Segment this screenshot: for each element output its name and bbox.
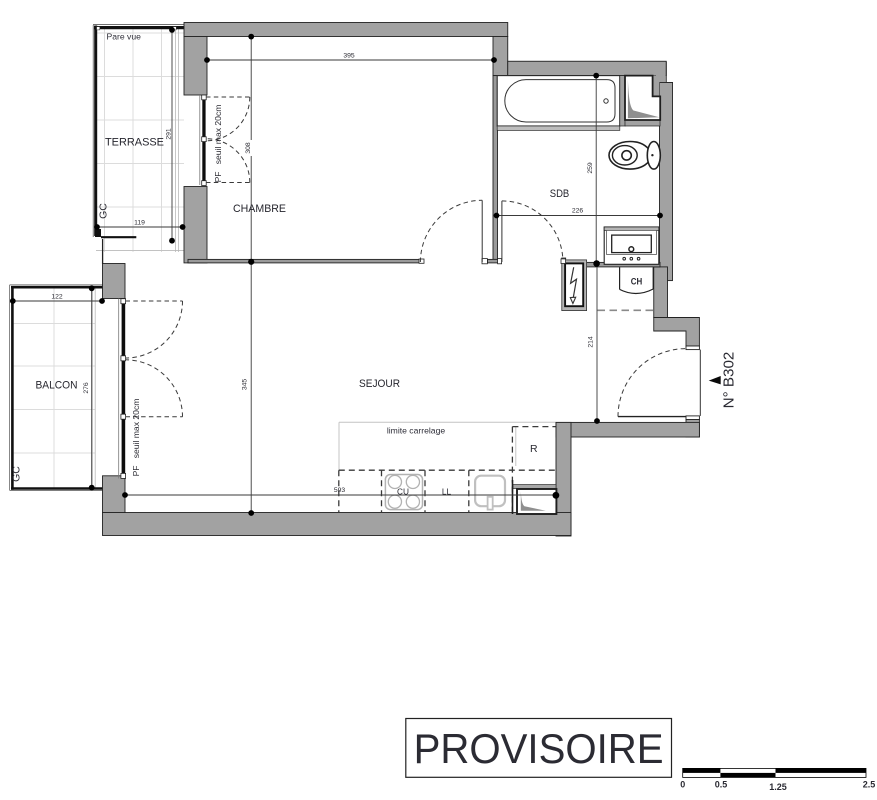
svg-text:308: 308	[245, 142, 252, 154]
svg-text:345: 345	[242, 379, 249, 391]
svg-text:PROVISOIRE: PROVISOIRE	[414, 725, 664, 772]
svg-text:TERRASSE: TERRASSE	[105, 137, 164, 149]
svg-text:CH: CH	[631, 277, 643, 287]
svg-text:119: 119	[134, 220, 145, 227]
svg-text:291: 291	[165, 128, 172, 140]
svg-text:CU: CU	[397, 486, 409, 496]
svg-text:214: 214	[587, 336, 594, 348]
svg-text:PF seuil max 20cm: PF seuil max 20cm	[131, 399, 141, 477]
svg-text:R: R	[530, 443, 538, 455]
svg-text:395: 395	[343, 53, 355, 60]
svg-text:BALCON: BALCON	[36, 380, 78, 392]
svg-text:limite carrelage: limite carrelage	[387, 426, 445, 436]
svg-text:1.25: 1.25	[769, 782, 787, 792]
svg-text:GC: GC	[11, 466, 23, 482]
svg-text:2.5: 2.5	[863, 780, 876, 790]
svg-text:SEJOUR: SEJOUR	[359, 378, 400, 390]
svg-text:276: 276	[83, 382, 90, 394]
svg-text:N° B302: N° B302	[721, 352, 738, 409]
svg-text:SDB: SDB	[550, 188, 570, 200]
svg-text:122: 122	[51, 293, 63, 300]
svg-text:LL: LL	[442, 487, 452, 497]
svg-text:Pare vue: Pare vue	[107, 32, 142, 42]
svg-text:0.5: 0.5	[715, 780, 728, 790]
svg-text:0: 0	[680, 780, 685, 790]
svg-text:593: 593	[334, 487, 346, 494]
svg-text:259: 259	[587, 162, 594, 174]
svg-text:GC: GC	[98, 203, 110, 219]
svg-text:PF seuil max 20cm: PF seuil max 20cm	[213, 105, 223, 183]
svg-text:CHAMBRE: CHAMBRE	[233, 203, 286, 215]
svg-text:226: 226	[572, 208, 584, 215]
